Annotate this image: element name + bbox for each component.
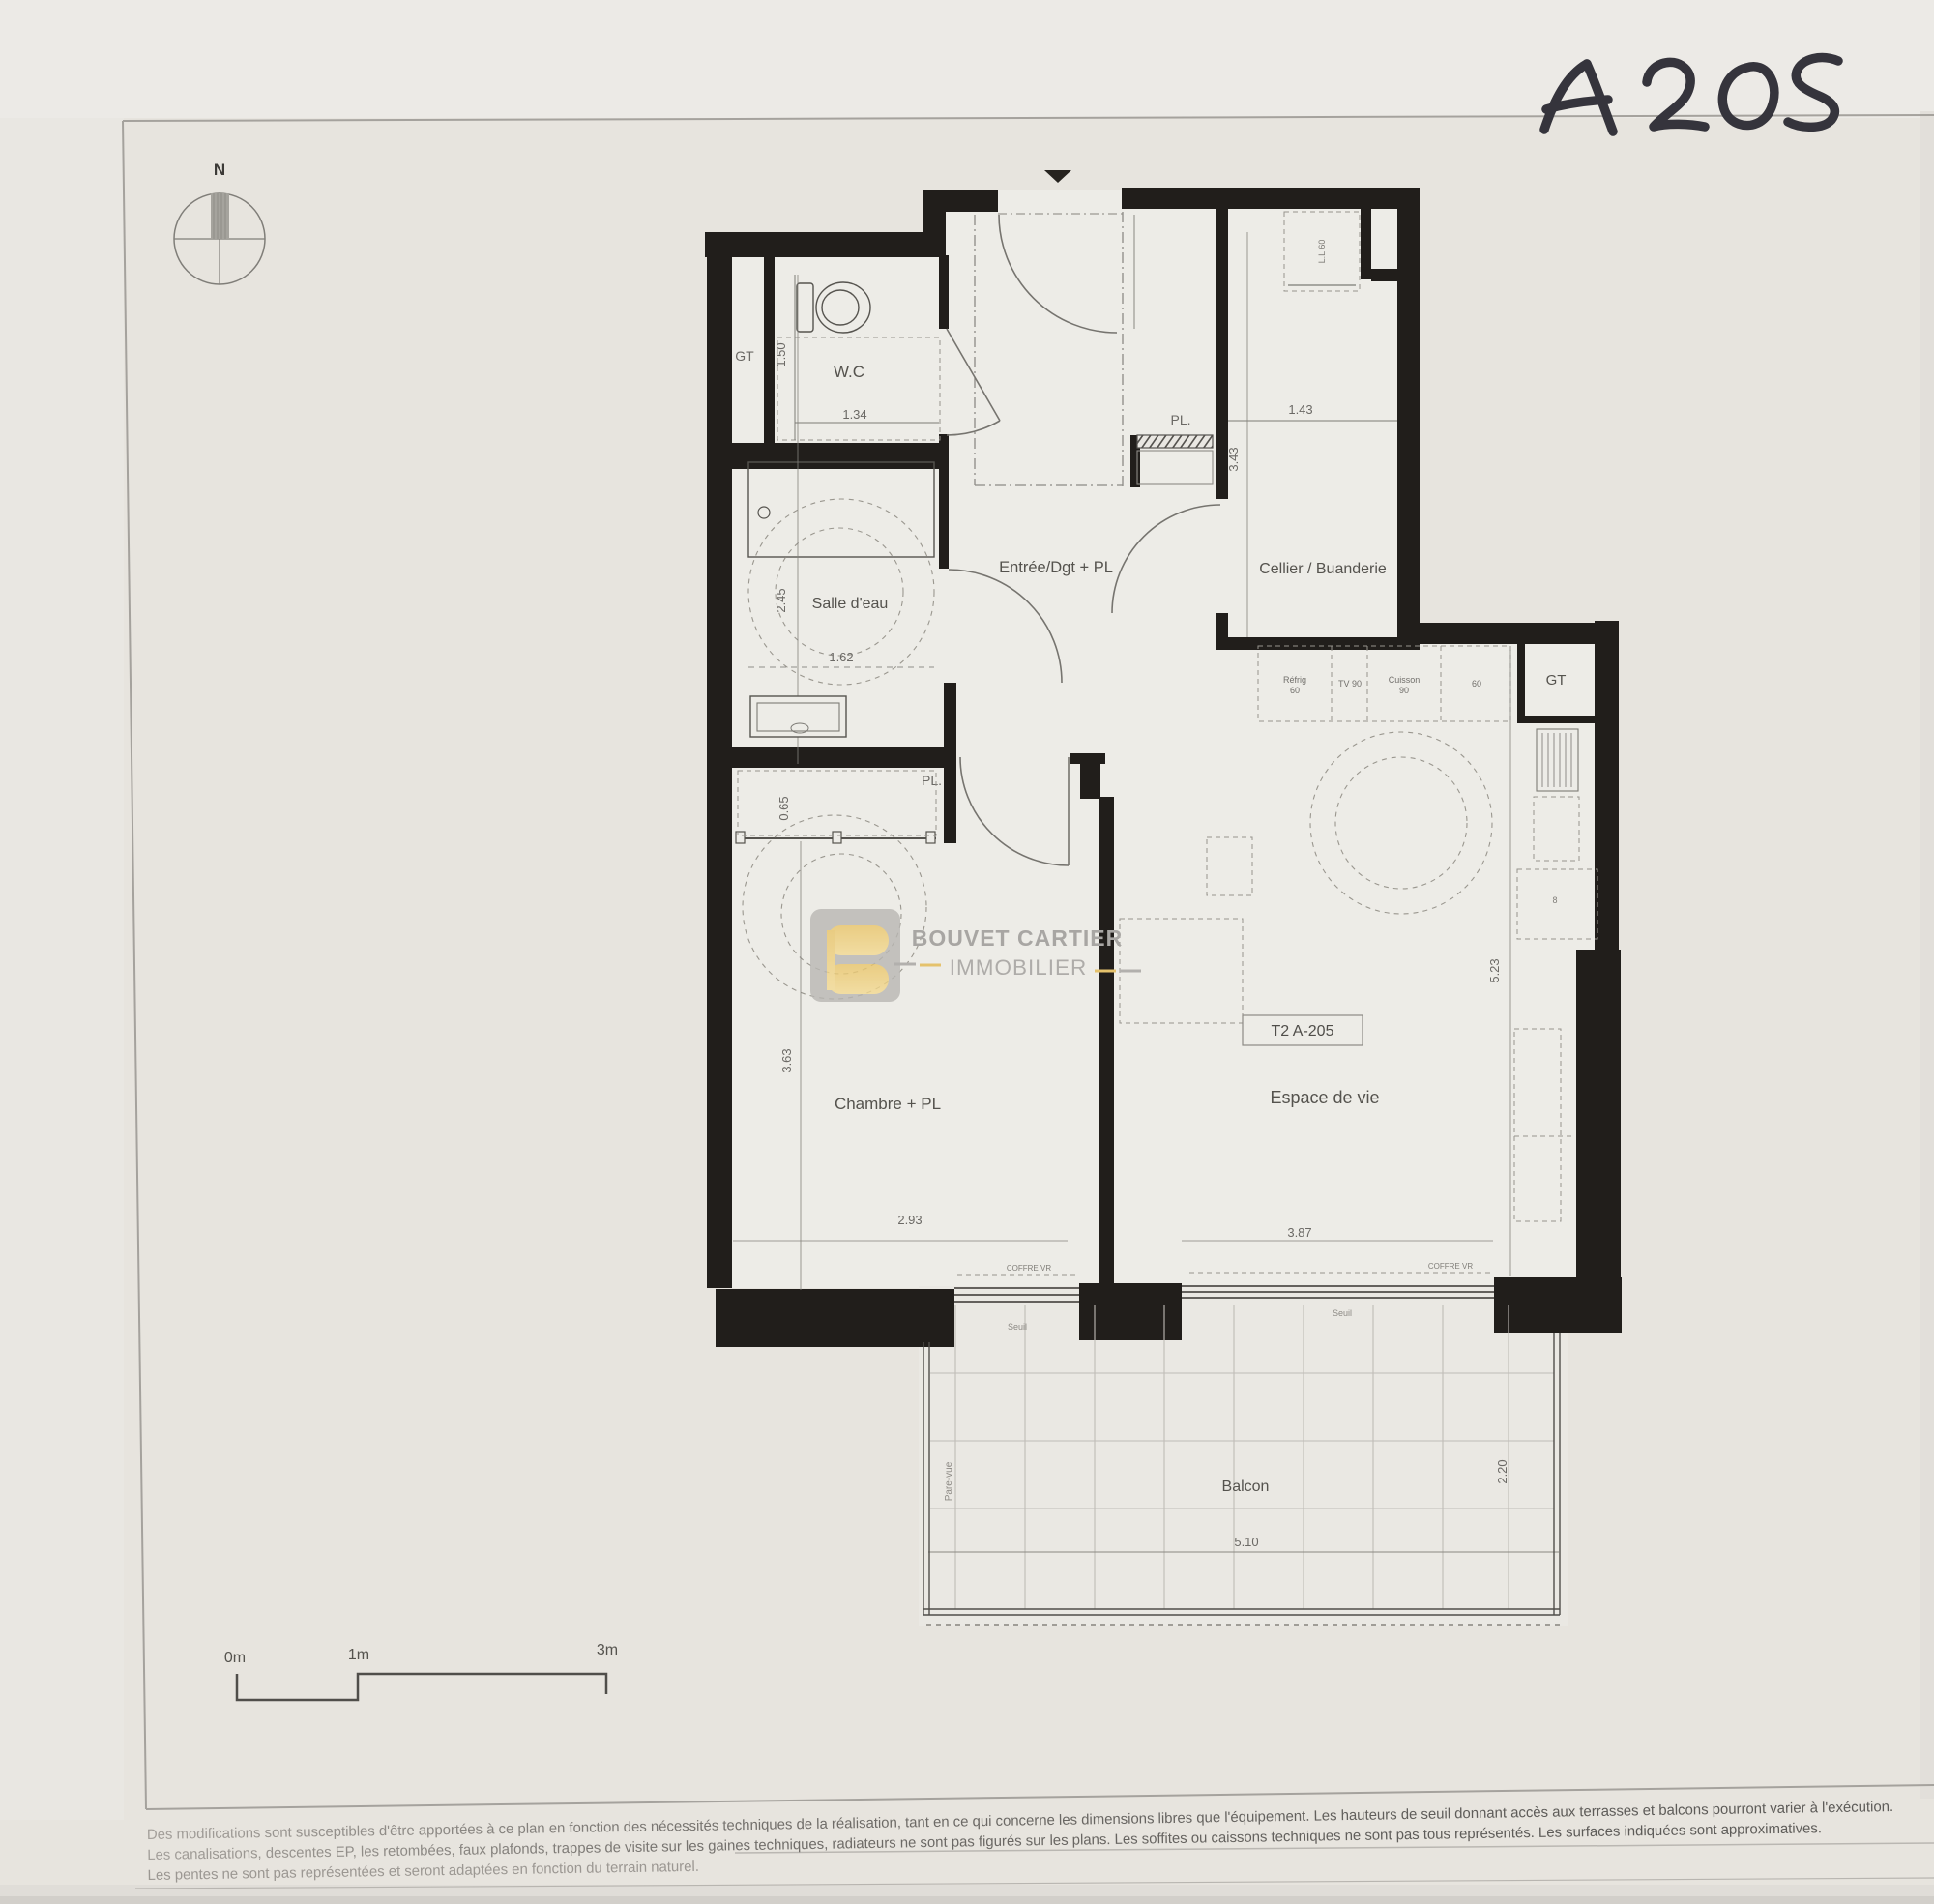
svg-text:60: 60	[1290, 686, 1300, 695]
svg-text:Pare-vue: Pare-vue	[944, 1461, 954, 1501]
svg-text:1.50: 1.50	[774, 342, 788, 366]
svg-text:PL.: PL.	[922, 773, 942, 788]
svg-text:COFFRE VR: COFFRE VR	[1007, 1264, 1051, 1273]
svg-text:1m: 1m	[348, 1647, 369, 1663]
svg-text:COFFRE VR: COFFRE VR	[1428, 1262, 1473, 1271]
svg-text:2.20: 2.20	[1495, 1459, 1509, 1483]
svg-text:T2 A-205: T2 A-205	[1272, 1023, 1334, 1040]
svg-text:BOUVET CARTIER: BOUVET CARTIER	[912, 925, 1123, 951]
svg-text:8: 8	[1552, 895, 1557, 905]
svg-text:3.63: 3.63	[779, 1048, 794, 1072]
svg-text:Balcon: Balcon	[1222, 1479, 1270, 1495]
svg-text:1.62: 1.62	[829, 650, 853, 664]
svg-text:Seuil: Seuil	[1333, 1308, 1352, 1318]
svg-text:5.23: 5.23	[1487, 958, 1502, 982]
svg-text:L.L 60: L.L 60	[1317, 240, 1327, 264]
svg-text:60: 60	[1472, 679, 1481, 688]
svg-text:Réfrig: Réfrig	[1283, 675, 1306, 685]
svg-text:90: 90	[1399, 686, 1409, 695]
svg-text:3.43: 3.43	[1226, 447, 1241, 471]
svg-text:5.10: 5.10	[1234, 1535, 1258, 1549]
svg-text:GT: GT	[735, 348, 754, 364]
svg-text:Cellier / Buanderie: Cellier / Buanderie	[1259, 561, 1387, 577]
svg-text:Cuisson: Cuisson	[1389, 675, 1421, 685]
svg-text:1.43: 1.43	[1288, 402, 1312, 417]
svg-text:N: N	[214, 161, 225, 179]
svg-text:PL.: PL.	[1170, 412, 1190, 427]
svg-text:Salle d'eau: Salle d'eau	[812, 596, 889, 612]
svg-text:2.45: 2.45	[774, 588, 788, 612]
svg-text:0m: 0m	[224, 1650, 246, 1666]
svg-text:0.65: 0.65	[777, 796, 791, 820]
svg-text:3.87: 3.87	[1287, 1225, 1311, 1240]
svg-text:3m: 3m	[597, 1642, 618, 1658]
svg-text:GT: GT	[1546, 672, 1567, 688]
svg-text:IMMOBILIER: IMMOBILIER	[950, 955, 1088, 980]
svg-text:Seuil: Seuil	[1008, 1322, 1027, 1332]
svg-text:1.34: 1.34	[842, 407, 866, 422]
svg-text:W.C: W.C	[834, 363, 864, 381]
svg-text:Chambre + PL: Chambre + PL	[835, 1095, 941, 1113]
svg-text:2.93: 2.93	[897, 1213, 922, 1227]
svg-text:TV 90: TV 90	[1338, 679, 1362, 688]
svg-text:Entrée/Dgt + PL: Entrée/Dgt + PL	[999, 559, 1113, 576]
svg-text:Espace de vie: Espace de vie	[1270, 1088, 1379, 1107]
